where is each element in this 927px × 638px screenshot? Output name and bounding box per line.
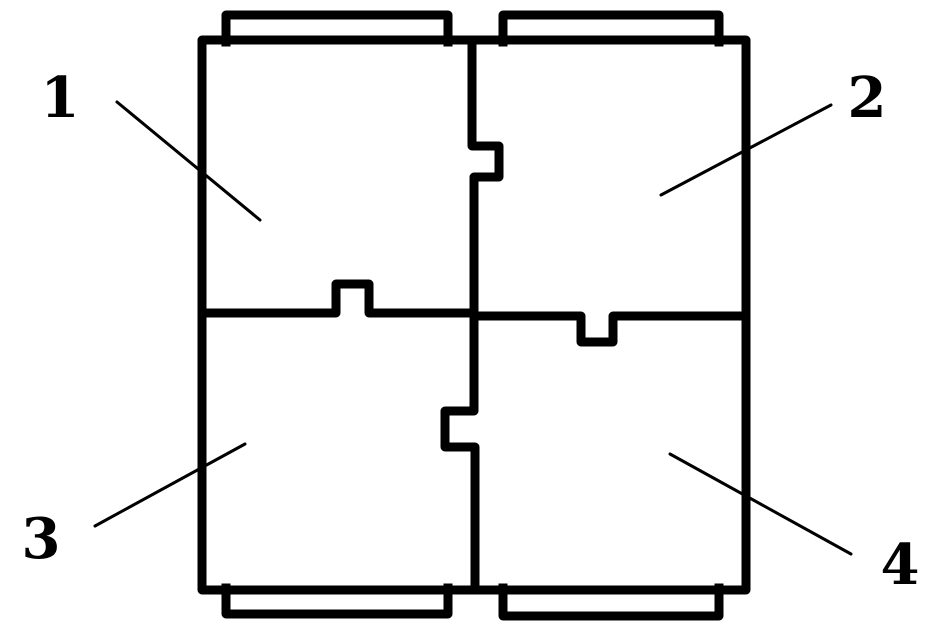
top-right-panel xyxy=(472,40,746,316)
part-label-3: 3 xyxy=(22,506,61,572)
top-left-panel xyxy=(202,40,472,313)
leader-line-1 xyxy=(117,102,260,220)
figure-canvas: 1 2 3 4 xyxy=(0,0,927,638)
seam-vertical-lower-with-left-tab xyxy=(445,313,475,590)
part-label-4: 4 xyxy=(881,532,920,598)
bottom-left-panel xyxy=(202,313,474,590)
panel-assembly-diagram: 1 2 3 4 xyxy=(0,0,927,638)
part-label-2: 2 xyxy=(848,65,887,131)
bottom-right-panel xyxy=(474,316,746,590)
seam-vertical-upper-with-right-tab xyxy=(472,40,499,313)
leader-line-4 xyxy=(670,454,851,554)
seam-horizontal-right-with-down-tab xyxy=(474,316,746,342)
seam-horizontal-left-with-up-tab xyxy=(202,284,472,313)
part-label-1: 1 xyxy=(41,65,80,131)
leader-line-3 xyxy=(95,444,245,526)
